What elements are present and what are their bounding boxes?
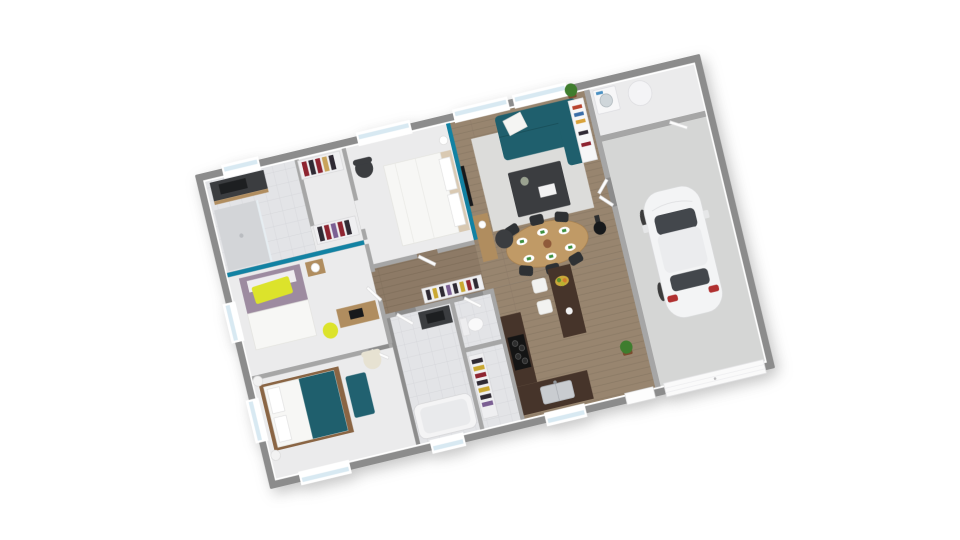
floor-plan-stage (0, 0, 960, 540)
stool-2 (537, 299, 554, 315)
dining-chair-4 (519, 265, 533, 276)
floor-plan-svg (182, 41, 788, 503)
stool-1 (531, 278, 548, 294)
dining-chair-3 (555, 211, 569, 222)
floor-plan-render (182, 41, 788, 503)
